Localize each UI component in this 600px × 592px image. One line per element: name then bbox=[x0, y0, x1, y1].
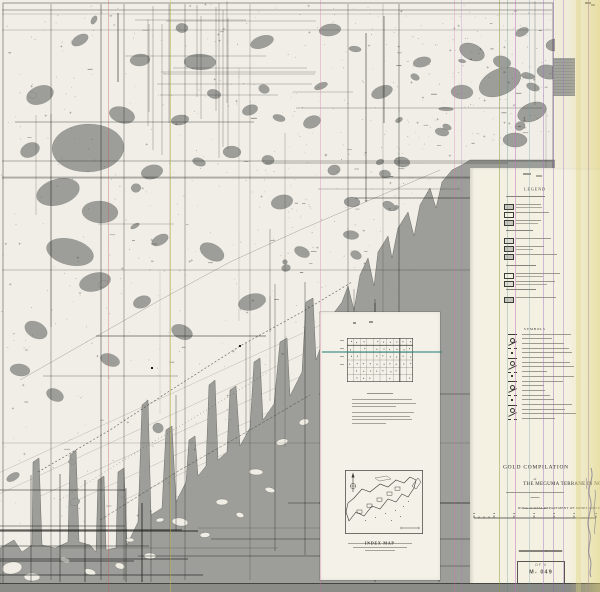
index-map bbox=[345, 470, 423, 534]
stamp-line2: M- 049 bbox=[528, 569, 553, 575]
panel-top-mark bbox=[523, 173, 531, 175]
legend-unit-box bbox=[504, 281, 514, 287]
legend-symbol-diagonal bbox=[508, 365, 517, 370]
index-caption-line bbox=[348, 543, 412, 544]
sheet-index-table bbox=[347, 338, 413, 382]
legend-entry-text bbox=[516, 246, 544, 247]
inset-panel: INDEX MAP bbox=[320, 312, 440, 580]
legend-subheading bbox=[506, 265, 536, 266]
legend-symbol-text bbox=[522, 395, 550, 396]
legend-unit-box bbox=[504, 220, 514, 226]
year-line bbox=[531, 497, 540, 498]
legend-subheading bbox=[506, 230, 533, 231]
legend-symbol-text bbox=[522, 348, 569, 349]
legend-symbol-text bbox=[522, 404, 572, 405]
note-heading-line bbox=[367, 393, 393, 394]
panel-top-mark bbox=[536, 175, 542, 177]
note-line bbox=[352, 403, 416, 404]
legend-unit-box bbox=[504, 246, 514, 252]
index-caption-line bbox=[353, 547, 407, 548]
legend-symbol-dot bbox=[511, 352, 513, 354]
legend-symbol-text bbox=[522, 338, 552, 339]
table-row-label bbox=[340, 348, 344, 349]
compiled-by-line bbox=[506, 492, 564, 493]
handwritten-annotation bbox=[582, 460, 600, 580]
legend-symbol-text bbox=[522, 371, 547, 372]
legend-unit-box bbox=[504, 212, 514, 218]
legend-subheading bbox=[506, 289, 536, 290]
legend-symbol-text bbox=[522, 399, 554, 400]
legend-unit-box bbox=[504, 273, 514, 279]
margin-gray-patch bbox=[553, 58, 575, 96]
legend-heading-text: LEGEND bbox=[524, 187, 546, 192]
map-sheet-extent-boxes bbox=[357, 487, 400, 513]
north-arrow bbox=[352, 473, 355, 478]
legend-symbol-line bbox=[508, 358, 517, 359]
legend-symbol-diagonal bbox=[508, 412, 517, 417]
catalogue-stamp: OF V M- 049 bbox=[517, 561, 565, 585]
legend-symbol-text bbox=[522, 366, 574, 367]
note-line bbox=[352, 412, 414, 413]
legend-symbol-text bbox=[522, 376, 574, 377]
legend-symbol-text bbox=[522, 381, 563, 382]
legend-symbol-dot bbox=[511, 399, 513, 401]
note-line bbox=[352, 406, 396, 407]
symbols-heading-text: SYMBOLS bbox=[524, 327, 546, 331]
legend-entry-text bbox=[516, 297, 556, 298]
legend-symbol-text bbox=[522, 357, 554, 358]
margin-mark bbox=[591, 4, 595, 6]
preliminary-series-word1 bbox=[519, 550, 547, 552]
legend-entry-text bbox=[516, 204, 541, 205]
index-caption-line bbox=[365, 550, 395, 551]
preliminary-series-word2 bbox=[546, 550, 562, 552]
legend-unit-box bbox=[504, 204, 514, 210]
legend-symbol-dashed bbox=[508, 395, 517, 396]
legend-entry-text bbox=[516, 220, 541, 221]
legend-symbol-text bbox=[522, 418, 555, 419]
note-line bbox=[352, 416, 410, 417]
legend-entry-text bbox=[516, 212, 549, 213]
legend-entry-text bbox=[516, 223, 538, 224]
legend-entry-text bbox=[516, 276, 543, 277]
legend-symbol-text bbox=[522, 409, 565, 410]
legend-subheading bbox=[506, 196, 545, 197]
note-line bbox=[352, 419, 412, 420]
nova-scotia-outline bbox=[346, 477, 416, 521]
symbols-heading: SYMBOLS bbox=[470, 320, 600, 338]
legend-symbol-dot bbox=[511, 375, 513, 377]
note-line bbox=[352, 423, 386, 424]
scale-bar bbox=[472, 512, 598, 522]
legend-symbol-line bbox=[508, 334, 517, 335]
legend-entry-text bbox=[516, 284, 547, 285]
legend-symbol-text bbox=[522, 343, 564, 344]
legend-symbol-text bbox=[522, 352, 572, 353]
table-row-label bbox=[340, 364, 344, 365]
note-line bbox=[352, 399, 412, 400]
legend-entry-text bbox=[516, 249, 533, 250]
legend-entry-text bbox=[516, 254, 557, 255]
legend-symbol-line bbox=[508, 405, 517, 406]
pei-outline bbox=[375, 476, 391, 481]
legend-entry-text bbox=[516, 238, 551, 239]
legend-entry-text bbox=[516, 281, 555, 282]
inset-mark bbox=[353, 322, 356, 324]
legend-entry-text bbox=[516, 207, 542, 208]
legend-symbol-dashed bbox=[508, 348, 517, 349]
legend-unit-box bbox=[504, 238, 514, 244]
table-row-label bbox=[340, 340, 344, 341]
legend-entry-text bbox=[516, 273, 560, 274]
legend-symbol-diagonal bbox=[508, 389, 517, 394]
legend-symbol-text bbox=[522, 413, 576, 414]
stamp-line1: OF V bbox=[531, 563, 552, 567]
cape-breton-outline bbox=[412, 478, 421, 489]
legend-symbol-dashed bbox=[508, 419, 517, 420]
scanned-map-sheet: LEGEND SYMBOLS GOLD COMPILATION of THE M… bbox=[0, 0, 600, 592]
legend-symbol-dashed bbox=[508, 372, 517, 373]
legend-symbol-text bbox=[522, 334, 571, 335]
scanner-edge-strip bbox=[0, 583, 600, 592]
legend-symbol-line bbox=[508, 381, 517, 382]
inset-mark bbox=[369, 321, 373, 323]
legend-symbol-text bbox=[522, 362, 570, 363]
legend-panel: LEGEND SYMBOLS GOLD COMPILATION of THE M… bbox=[470, 168, 600, 592]
legend-unit-box bbox=[504, 297, 514, 303]
table-row-label bbox=[340, 356, 344, 357]
legend-symbol-diagonal bbox=[508, 342, 517, 347]
scale-text-line bbox=[523, 508, 547, 509]
legend-symbol-text bbox=[522, 385, 544, 386]
legend-unit-box bbox=[504, 254, 514, 260]
legend-symbol-text bbox=[522, 390, 545, 391]
